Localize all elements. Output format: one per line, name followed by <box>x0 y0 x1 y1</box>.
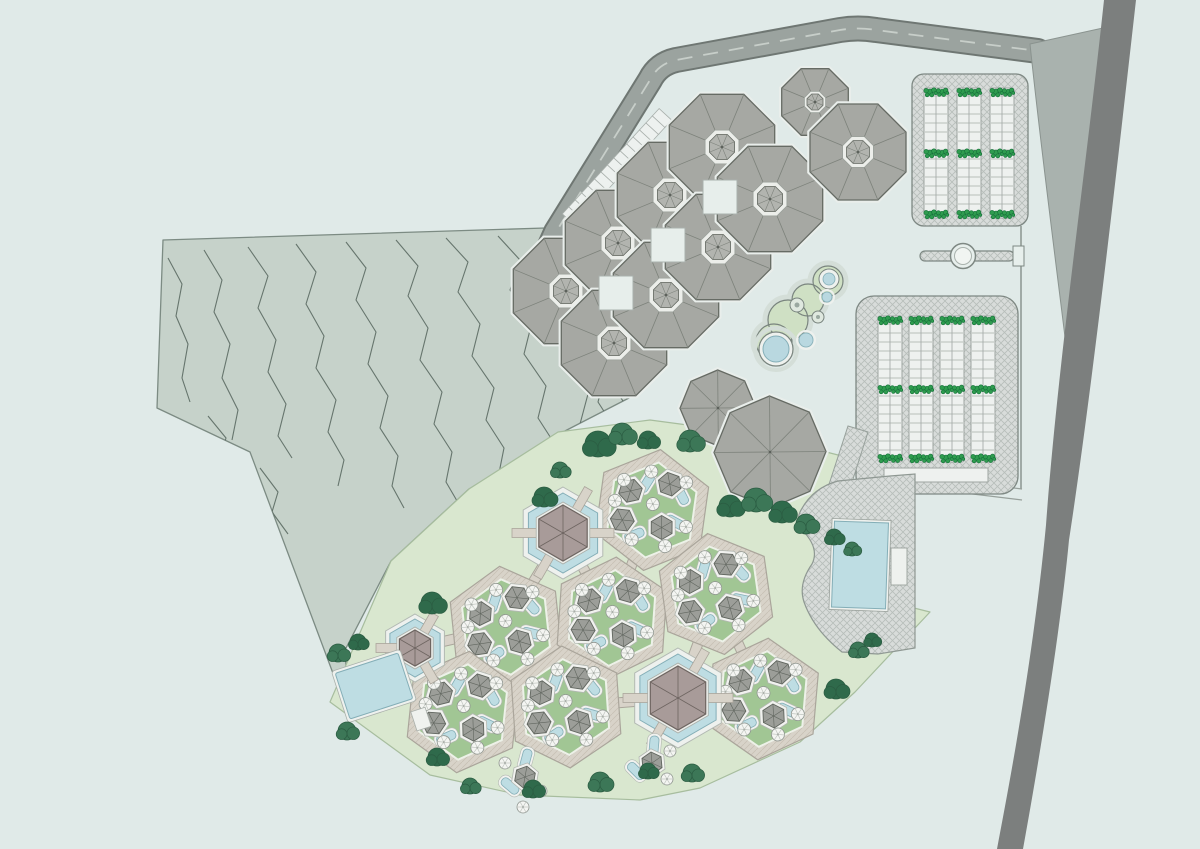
shrub-blob <box>971 154 975 158</box>
roof-apex <box>721 146 724 149</box>
shrub-blob <box>1012 213 1015 216</box>
shrub-blob <box>946 321 950 325</box>
shrub-blob <box>1008 93 1012 97</box>
tree-crown <box>742 497 756 511</box>
site-plan-canvas <box>0 0 1200 849</box>
shrub-blob <box>977 321 981 325</box>
tree-crown <box>437 753 450 766</box>
parasol <box>521 699 535 713</box>
parasol <box>596 710 610 724</box>
shrub-blob <box>896 390 900 394</box>
shrub-blob <box>972 459 976 463</box>
shrub-blob <box>921 317 925 321</box>
tree-crown <box>533 785 546 798</box>
roof-apex <box>565 290 568 293</box>
shrub-blob <box>971 215 975 219</box>
shrub-blob <box>954 321 958 325</box>
shrub-blob <box>915 321 919 325</box>
shrub-blob <box>985 390 989 394</box>
shrub-blob <box>1002 211 1006 215</box>
planter-dot <box>795 303 800 308</box>
shrub-blob <box>900 457 903 460</box>
parasol <box>525 676 539 690</box>
roof-apex <box>717 246 720 249</box>
shrub-blob <box>993 457 996 460</box>
parasol <box>621 646 635 660</box>
shrub-blob <box>931 388 934 391</box>
tree-crown <box>419 600 432 613</box>
tree-crown <box>756 495 773 512</box>
shrub-blob <box>983 455 987 459</box>
blue-pool <box>799 333 813 347</box>
tree-crown <box>600 778 614 792</box>
shrub-blob <box>946 390 950 394</box>
roof-apex <box>613 342 616 345</box>
tree-crown <box>336 729 347 740</box>
moat-bridge <box>623 694 651 703</box>
shrub-blob <box>1004 93 1008 97</box>
shrub-blob <box>971 385 975 389</box>
shrub-blob <box>923 321 927 325</box>
parasol <box>640 626 654 640</box>
shrub-blob <box>1004 215 1008 219</box>
shrub-blob <box>989 321 993 325</box>
shrub-blob <box>940 454 944 458</box>
tree-crown <box>470 782 481 793</box>
shrub-blob <box>900 319 903 322</box>
shrub-blob <box>957 88 961 92</box>
tree-crown <box>582 441 598 457</box>
shrub-blob <box>940 316 944 320</box>
shrub-blob <box>1002 89 1006 93</box>
shrub-blob <box>993 388 996 391</box>
shrub-blob <box>957 210 961 214</box>
parasol-pole <box>669 750 671 752</box>
shrub-blob <box>958 215 962 219</box>
shrub-blob <box>941 459 945 463</box>
tree-crown <box>844 547 852 555</box>
shrub-blob <box>942 215 946 219</box>
shrub-blob <box>972 321 976 325</box>
shrub-blob <box>910 321 914 325</box>
tree-crown <box>848 648 858 658</box>
shrub-blob <box>996 93 1000 97</box>
parasol <box>499 757 511 769</box>
octagon-pavilion <box>711 393 829 511</box>
roof-apex <box>769 198 772 201</box>
shrub-blob <box>892 321 896 325</box>
tree-crown <box>794 522 806 534</box>
parasol <box>567 604 581 618</box>
shrub-blob <box>930 215 934 219</box>
shrub-blob <box>925 215 929 219</box>
shrub-blob <box>884 390 888 394</box>
parking-lot-east <box>856 296 1018 494</box>
shrub-blob <box>1004 154 1008 158</box>
shrub-blob <box>954 390 958 394</box>
shrub-blob <box>931 319 934 322</box>
shrub-blob <box>921 386 925 390</box>
shrub-blob <box>927 390 931 394</box>
shrub-blob <box>892 390 896 394</box>
tree-crown <box>432 598 447 613</box>
tree-crown <box>690 436 705 451</box>
shrub-blob <box>942 154 946 158</box>
parasol <box>545 733 559 747</box>
shrub-blob <box>909 385 913 389</box>
parasol <box>605 605 619 619</box>
shrub-blob <box>971 93 975 97</box>
shrub-blob <box>1008 215 1012 219</box>
shrub-blob <box>924 149 928 153</box>
shrub-blob <box>879 321 883 325</box>
tree-crown <box>348 640 358 650</box>
tree-crown <box>824 535 834 545</box>
shrub-blob <box>879 459 883 463</box>
shrub-blob <box>941 321 945 325</box>
shrub-blob <box>985 321 989 325</box>
shrub-blob <box>991 93 995 97</box>
shrub-blob <box>962 457 965 460</box>
shrub-blob <box>985 459 989 463</box>
tree-crown <box>588 780 600 792</box>
parasol <box>664 745 676 757</box>
shrub-blob <box>890 317 894 321</box>
shrub-blob <box>884 321 888 325</box>
shrub-blob <box>942 93 946 97</box>
shrub-blob <box>989 459 993 463</box>
shrub-blob <box>971 454 975 458</box>
tree-crown <box>358 638 369 649</box>
tree-crown <box>648 436 661 449</box>
shrub-blob <box>924 210 928 214</box>
planter-dot <box>816 315 820 319</box>
shrub-blob <box>993 319 996 322</box>
shrub-blob <box>969 89 973 93</box>
tree-crown <box>338 649 351 662</box>
shrub-blob <box>1012 152 1015 155</box>
roof-apex <box>665 294 668 297</box>
tree-crown <box>692 769 705 782</box>
shrub-blob <box>979 213 982 216</box>
parasol-pole <box>504 762 506 764</box>
tree-crown <box>532 495 544 507</box>
tree-crown <box>836 685 850 699</box>
tree-crown <box>852 546 862 556</box>
shrub-blob <box>941 390 945 394</box>
tree-crown <box>560 466 571 477</box>
shrub-blob <box>990 210 994 214</box>
shrub-blob <box>977 390 981 394</box>
shrub-blob <box>963 93 967 97</box>
octagon-pavilion <box>807 101 909 203</box>
shrub-blob <box>969 150 973 154</box>
shrub-blob <box>910 390 914 394</box>
shrub-blob <box>892 459 896 463</box>
shrub-blob <box>996 215 1000 219</box>
parasol <box>559 694 573 708</box>
tree-crown <box>824 687 836 699</box>
shrub-blob <box>989 390 993 394</box>
tree-crown <box>426 755 437 766</box>
shrub-blob <box>938 93 942 97</box>
shrub-blob <box>896 459 900 463</box>
shrub-blob <box>909 454 913 458</box>
roof-apex <box>717 407 720 410</box>
shrub-blob <box>1002 150 1006 154</box>
shrub-blob <box>958 390 962 394</box>
site-plan-page <box>0 0 1200 849</box>
shrub-blob <box>930 93 934 97</box>
tree-crown <box>544 493 558 507</box>
tree-crown <box>522 787 533 798</box>
tree-crown <box>864 638 872 646</box>
tree-crown <box>769 509 782 522</box>
shrub-blob <box>1008 154 1012 158</box>
tree-crown <box>858 646 869 657</box>
moat-bridge <box>705 694 733 703</box>
tree-crown <box>681 771 692 782</box>
shrub-blob <box>963 154 967 158</box>
tree-crown <box>717 503 730 516</box>
shrub-blob <box>930 154 934 158</box>
shrub-blob <box>936 89 940 93</box>
shrub-blob <box>983 317 987 321</box>
shrub-blob <box>954 459 958 463</box>
shrub-blob <box>878 454 882 458</box>
shrub-blob <box>946 459 950 463</box>
shrub-blob <box>975 215 979 219</box>
shrub-blob <box>957 149 961 153</box>
shrub-blob <box>983 386 987 390</box>
shrub-blob <box>977 459 981 463</box>
shrub-blob <box>915 390 919 394</box>
shrub-blob <box>923 459 927 463</box>
shrub-blob <box>990 88 994 92</box>
shrub-blob <box>972 390 976 394</box>
shrub-blob <box>900 388 903 391</box>
shrub-blob <box>952 455 956 459</box>
tree-crown <box>622 429 637 444</box>
parasol <box>587 642 601 656</box>
tree-crown <box>782 507 797 522</box>
shrub-blob <box>890 386 894 390</box>
tree-crown <box>806 520 820 534</box>
shrub-blob <box>952 386 956 390</box>
shrub-blob <box>975 154 979 158</box>
parasol <box>602 573 616 587</box>
shrub-blob <box>996 154 1000 158</box>
tree-crown <box>677 438 690 451</box>
courtyard-square <box>703 180 737 214</box>
shrub-blob <box>991 215 995 219</box>
shrub-blob <box>915 459 919 463</box>
parasol <box>661 773 673 785</box>
tree-crown <box>872 637 882 647</box>
shrub-blob <box>925 93 929 97</box>
shrub-blob <box>946 152 949 155</box>
shrub-blob <box>958 459 962 463</box>
shrub-blob <box>938 215 942 219</box>
shrub-blob <box>963 215 967 219</box>
tree-crown <box>609 431 622 444</box>
shrub-blob <box>971 316 975 320</box>
shrub-blob <box>946 213 949 216</box>
tree-crown <box>327 651 338 662</box>
shrub-blob <box>890 455 894 459</box>
parking-lot-north <box>912 74 1028 226</box>
shrub-blob <box>909 316 913 320</box>
parasol <box>517 801 529 813</box>
parasol-pole <box>666 778 668 780</box>
tree-crown <box>648 767 659 778</box>
blue-pool <box>822 292 832 302</box>
tree-crown <box>550 468 560 478</box>
shrub-blob <box>940 385 944 389</box>
shrub-blob <box>979 91 982 94</box>
shrub-blob <box>931 457 934 460</box>
roof-apex <box>669 194 672 197</box>
parasol <box>579 733 593 747</box>
shrub-blob <box>958 93 962 97</box>
shrub-blob <box>936 211 940 215</box>
round-pool <box>763 336 789 362</box>
shrub-blob <box>962 388 965 391</box>
deck-pad <box>891 548 907 585</box>
shrub-blob <box>927 459 931 463</box>
parasol <box>587 666 601 680</box>
shrub-blob <box>946 91 949 94</box>
shrub-blob <box>923 390 927 394</box>
tree-crown <box>347 727 360 740</box>
shrub-blob <box>1012 91 1015 94</box>
roof-apex <box>814 101 817 104</box>
shrub-blob <box>878 316 882 320</box>
shrub-blob <box>969 211 973 215</box>
tree-crown <box>460 784 470 794</box>
shrub-blob <box>975 93 979 97</box>
shrub-blob <box>884 459 888 463</box>
shrub-blob <box>990 149 994 153</box>
shrub-blob <box>952 317 956 321</box>
shrub-blob <box>878 385 882 389</box>
shrub-blob <box>896 321 900 325</box>
courtyard-square <box>651 228 685 262</box>
shrub-blob <box>958 154 962 158</box>
parasol <box>550 663 564 677</box>
shrub-blob <box>979 152 982 155</box>
parasol-pole <box>522 806 524 808</box>
gate-bracket <box>1013 246 1024 266</box>
tree-crown <box>638 769 648 779</box>
gate-circle-inner <box>955 248 972 265</box>
shrub-blob <box>936 150 940 154</box>
shrub-blob <box>991 154 995 158</box>
shrub-blob <box>958 321 962 325</box>
tree-crown <box>637 438 648 449</box>
courtyard-square <box>599 276 633 310</box>
roof-apex <box>857 151 860 154</box>
shrub-blob <box>938 154 942 158</box>
shrub-blob <box>879 390 883 394</box>
parasol <box>637 581 651 595</box>
shrub-blob <box>924 88 928 92</box>
shrub-blob <box>962 319 965 322</box>
roof-apex <box>769 451 772 454</box>
shrub-blob <box>927 321 931 325</box>
tree-crown <box>834 533 845 544</box>
roof-apex <box>617 242 620 245</box>
shrub-blob <box>925 154 929 158</box>
shrub-blob <box>910 459 914 463</box>
parasol <box>575 583 589 597</box>
ring-pool <box>823 273 835 285</box>
shrub-blob <box>921 455 925 459</box>
